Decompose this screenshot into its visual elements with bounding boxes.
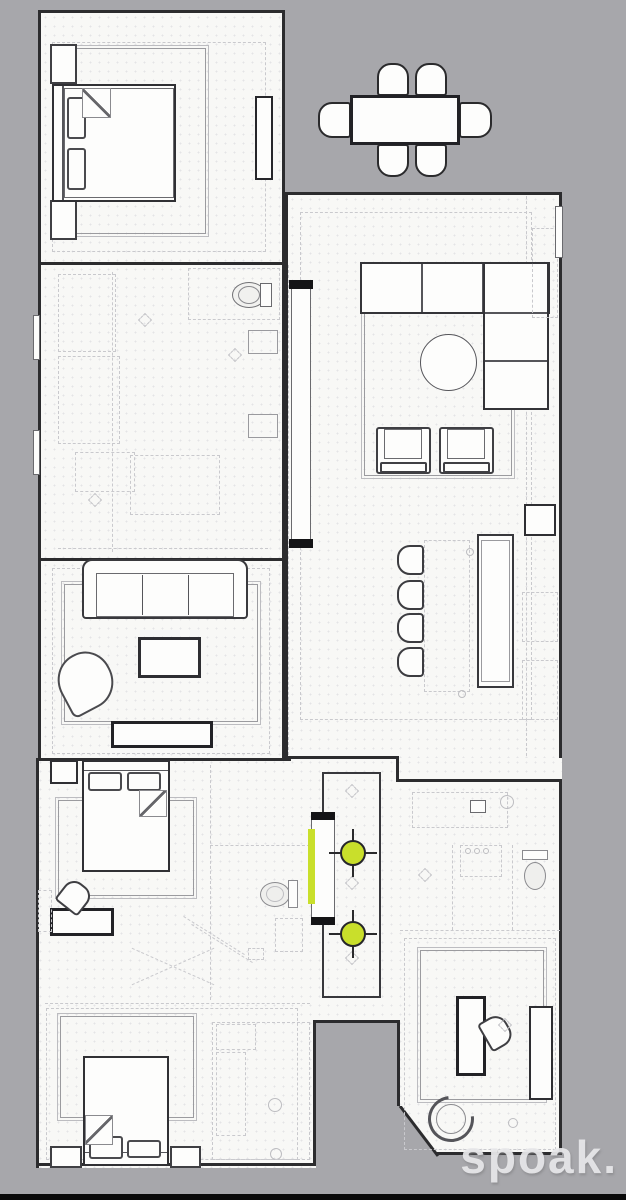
armchair-seat	[384, 429, 422, 459]
existing-wall-line	[400, 930, 560, 931]
nightstand[interactable]	[170, 1146, 201, 1168]
light-bulb-icon	[340, 921, 366, 947]
existing-fixture	[38, 890, 52, 932]
blanket-fold	[139, 790, 167, 817]
sofa-cushion-line	[188, 575, 189, 615]
existing-wall-line	[45, 1003, 310, 1004]
bar-stool[interactable]	[397, 647, 424, 677]
existing-cabinet	[58, 356, 120, 444]
toilet-bowl-inner	[266, 886, 284, 902]
pillow	[127, 1140, 161, 1158]
nightstand[interactable]	[50, 200, 77, 240]
desk[interactable]	[50, 908, 114, 936]
window	[555, 206, 563, 258]
existing-counter	[424, 540, 470, 692]
dresser[interactable]	[255, 96, 273, 180]
ceiling-light[interactable]	[329, 910, 377, 958]
toilet-bowl-inner	[238, 286, 260, 304]
plan-mark	[466, 548, 474, 556]
dining-chair[interactable]	[459, 102, 492, 138]
light-bulb-icon	[340, 840, 366, 866]
spoak-watermark: spoak.	[460, 1130, 618, 1184]
wall-fixture	[248, 330, 278, 354]
wall-step-top	[285, 756, 399, 759]
existing-cabinet	[58, 274, 116, 352]
wall-right-lower	[559, 782, 562, 1155]
window	[33, 430, 40, 475]
existing-wall-line	[512, 845, 513, 930]
wall-fixture	[470, 800, 486, 813]
pillow	[88, 772, 122, 791]
bookcase[interactable]	[529, 1006, 553, 1100]
round-coffee-table[interactable]	[420, 334, 477, 391]
partition-cap	[289, 280, 313, 289]
nightstand[interactable]	[50, 44, 77, 84]
bar-stool[interactable]	[397, 545, 424, 575]
faucet-mark	[483, 848, 489, 854]
faucet-mark	[474, 848, 480, 854]
toilet-tank	[522, 850, 548, 860]
existing-vanity	[275, 918, 303, 952]
toilet-tank	[288, 880, 298, 908]
existing-wall-line	[452, 845, 453, 930]
nightstand[interactable]	[50, 1146, 82, 1168]
highlight-strip[interactable]	[308, 829, 315, 904]
bed-headboard-line	[84, 770, 168, 771]
dining-chair[interactable]	[377, 144, 409, 177]
wall-cabinet[interactable]	[524, 504, 556, 536]
existing-appliance	[522, 592, 558, 642]
existing-wall-line	[210, 765, 211, 1000]
sofa-seat	[96, 573, 234, 617]
nightstand[interactable]	[50, 760, 78, 784]
dining-table[interactable]	[350, 95, 460, 145]
ceiling-light[interactable]	[329, 829, 377, 877]
exterior-notch	[316, 1023, 397, 1168]
coffee-table[interactable]	[138, 637, 201, 678]
media-console[interactable]	[111, 721, 213, 748]
dining-chair[interactable]	[415, 63, 447, 96]
armchair-base	[443, 462, 490, 473]
existing-appliance	[522, 660, 558, 720]
plan-mark	[508, 1118, 518, 1128]
dining-chair[interactable]	[415, 144, 447, 177]
blanket-fold	[85, 1115, 113, 1145]
existing-wall-line	[58, 548, 268, 549]
floor-plan-canvas: spoak.	[0, 0, 626, 1200]
wall-office-left	[397, 1020, 400, 1112]
toilet	[524, 862, 546, 890]
partition-shelf[interactable]	[291, 282, 311, 548]
partition-cap	[289, 539, 313, 548]
desk[interactable]	[456, 996, 486, 1076]
pillow	[67, 148, 86, 190]
wall-fixture	[248, 414, 278, 438]
plan-mark	[458, 690, 466, 698]
plan-mark	[500, 795, 514, 809]
sofa-cushion-line	[142, 575, 143, 615]
dining-chair[interactable]	[377, 63, 409, 96]
wall-kitchen-bottom	[396, 779, 562, 782]
bar-stool[interactable]	[397, 613, 424, 643]
wall-bottom-left-vert	[36, 758, 39, 1168]
existing-fixture	[412, 792, 508, 828]
armchair-base	[380, 462, 427, 473]
bottom-border-bar	[0, 1194, 626, 1200]
pillow	[127, 772, 161, 791]
existing-fixture	[130, 455, 220, 515]
bar-stool[interactable]	[397, 580, 424, 610]
toilet-tank	[260, 283, 272, 307]
wardrobe-cap	[311, 812, 335, 820]
existing-fixture	[75, 452, 135, 492]
kitchen-island-top	[481, 540, 510, 682]
sectional-cushion-line	[421, 264, 423, 312]
armchair-seat	[447, 429, 485, 459]
existing-wall-line	[288, 265, 289, 755]
faucet-mark	[465, 848, 471, 854]
existing-fixture	[248, 948, 264, 960]
sectional-cushion-line	[485, 360, 547, 362]
dining-chair[interactable]	[318, 102, 351, 138]
existing-wall-line	[210, 845, 310, 846]
blanket-fold	[82, 88, 111, 118]
window	[33, 315, 40, 360]
